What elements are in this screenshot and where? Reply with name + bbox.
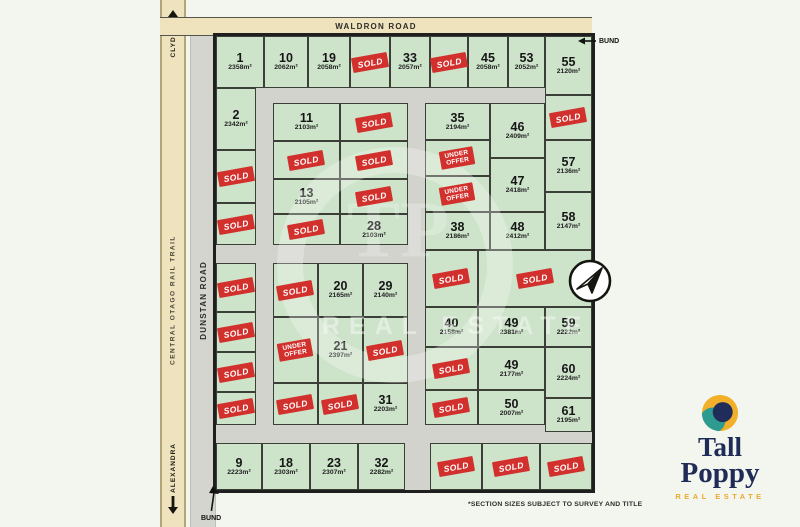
lot-18: 182303m²	[262, 443, 310, 490]
sold-badge: SOLD	[355, 111, 393, 132]
lot-size: 2358m²	[228, 64, 251, 72]
lot-2: 22342m²	[216, 88, 256, 150]
alexandra-label: ALEXANDRA	[170, 443, 177, 493]
lot-sold: SOLD	[216, 392, 256, 425]
lot-size: 2223m²	[227, 469, 250, 477]
lot-sold: SOLD	[216, 203, 256, 245]
lot-number: 58	[562, 211, 576, 223]
lot-number: 10	[279, 52, 293, 64]
bund-label-top: BUND	[578, 37, 619, 45]
lot-sold: SOLD	[430, 443, 482, 490]
sold-badge: SOLD	[366, 339, 404, 360]
lot-number: 2	[233, 109, 240, 121]
lot-40: 402158m²	[425, 307, 478, 347]
lot-sold: SOLD	[273, 263, 318, 317]
lot-number: 60	[562, 363, 576, 375]
sold-badge: SOLD	[437, 456, 475, 477]
lot-sold: SOLD	[540, 443, 592, 490]
sold-badge: SOLD	[432, 397, 470, 418]
lot-number: 19	[322, 52, 336, 64]
lot-sold: SOLD	[425, 250, 478, 307]
lot-size: 2062m²	[274, 64, 297, 72]
down-arrow-icon	[168, 496, 178, 514]
lot-sold: SOLD	[430, 36, 468, 88]
lot-under-offer: UNDEROFFER	[425, 176, 490, 212]
logo-tagline: REAL ESTATE	[655, 492, 785, 501]
lot-47: 472418m²	[490, 158, 545, 212]
lot-sold: SOLD	[216, 263, 256, 312]
lot-sold: SOLD	[273, 214, 340, 245]
lot-size: 2158m²	[440, 329, 463, 337]
lot-31: 312203m²	[363, 383, 408, 425]
lot-59: 592222m²	[545, 307, 592, 347]
lot-35: 352194m²	[425, 103, 490, 140]
lot-size: 2105m²	[295, 199, 318, 207]
lot-number: 38	[451, 221, 465, 233]
lot-number: 31	[379, 394, 393, 406]
sold-badge: SOLD	[276, 279, 314, 300]
lot-number: 46	[511, 121, 525, 133]
lot-sold: SOLD	[273, 141, 340, 179]
lot-21: 212397m²	[318, 317, 363, 383]
bund-label-bottom: BUND	[201, 486, 223, 522]
compass-icon	[567, 258, 613, 304]
lot-10: 102062m²	[264, 36, 308, 88]
sold-badge: SOLD	[351, 51, 389, 72]
lot-sold: SOLD	[216, 150, 256, 203]
lot-number: 32	[375, 457, 389, 469]
lot-sold: SOLD	[318, 383, 363, 425]
lot-size: 2418m²	[506, 187, 529, 195]
lot-size: 2222m²	[557, 329, 580, 337]
poppy-flower-icon	[700, 393, 740, 433]
lot-20: 202165m²	[318, 263, 363, 317]
lot-number: 35	[451, 112, 465, 124]
lot-29: 292140m²	[363, 263, 408, 317]
logo-line1: Tall	[655, 435, 785, 459]
lot-32: 322282m²	[358, 443, 405, 490]
sold-badge: SOLD	[321, 393, 359, 414]
sold-badge: SOLD	[516, 268, 554, 289]
subdivision-map: CLYDE CENTRAL OTAGO RAIL TRAIL ALEXANDRA…	[0, 0, 800, 527]
waldron-road-label: WALDRON ROAD	[335, 22, 417, 31]
lot-size: 2412m²	[506, 233, 529, 241]
sold-badge: SOLD	[217, 321, 255, 342]
sold-badge: SOLD	[217, 398, 255, 419]
lot-33: 332057m²	[390, 36, 430, 88]
under-offer-badge: UNDEROFFER	[439, 182, 476, 206]
lot-size: 2057m²	[398, 64, 421, 72]
sold-badge: SOLD	[355, 149, 393, 170]
lot-60: 602224m²	[545, 347, 592, 398]
lot-number: 45	[481, 52, 495, 64]
lot-number: 29	[379, 280, 393, 292]
lot-size: 2397m²	[329, 352, 352, 360]
lot-number: 28	[367, 220, 381, 232]
sold-badge: SOLD	[492, 456, 530, 477]
lot-number: 47	[511, 175, 525, 187]
waldron-road: WALDRON ROAD	[160, 17, 592, 36]
lot-number: 55	[562, 56, 576, 68]
lot-number: 49	[505, 359, 519, 371]
under-offer-badge: UNDEROFFER	[277, 338, 314, 362]
lot-size: 2194m²	[446, 124, 469, 132]
footnote: *SECTION SIZES SUBJECT TO SURVEY AND TIT…	[468, 501, 642, 508]
lot-sold: SOLD	[425, 390, 478, 425]
lot-58: 582147m²	[545, 192, 592, 250]
lot-number: 23	[327, 457, 341, 469]
sold-badge: SOLD	[217, 361, 255, 382]
sold-badge: SOLD	[287, 219, 325, 240]
lot-49: 492177m²	[478, 347, 545, 390]
sold-badge: SOLD	[217, 277, 255, 298]
lot-61: 612195m²	[545, 398, 592, 432]
lot-9: 92223m²	[216, 443, 262, 490]
lot-19: 192058m²	[308, 36, 350, 88]
lot-number: 48	[511, 221, 525, 233]
leader-arrow-icon	[578, 37, 596, 45]
lot-size: 2165m²	[329, 292, 352, 300]
lot-number: 49	[505, 317, 519, 329]
lot-size: 2120m²	[557, 68, 580, 76]
sold-badge: SOLD	[549, 107, 587, 128]
lot-sold: SOLD	[545, 95, 592, 140]
lot-size: 2058m²	[317, 64, 340, 72]
lot-28: 282103m²	[340, 214, 408, 245]
lot-11: 112103m²	[273, 103, 340, 141]
lot-sold: SOLD	[216, 312, 256, 352]
lot-sold: SOLD	[363, 317, 408, 383]
logo-line2: Poppy	[655, 459, 785, 487]
under-offer-badge: UNDEROFFER	[439, 146, 476, 170]
lot-size: 2409m²	[506, 133, 529, 141]
lot-57: 572136m²	[545, 140, 592, 192]
lot-number: 18	[279, 457, 293, 469]
lot-number: 11	[300, 112, 313, 124]
lot-size: 2203m²	[374, 406, 397, 414]
lot-size: 2058m²	[476, 64, 499, 72]
lot-size: 2307m²	[322, 469, 345, 477]
lot-number: 1	[237, 52, 244, 64]
lot-50: 502007m²	[478, 390, 545, 425]
sold-badge: SOLD	[430, 51, 468, 72]
lot-size: 2342m²	[224, 121, 247, 129]
lot-under-offer: UNDEROFFER	[425, 140, 490, 176]
lot-sold: SOLD	[340, 141, 408, 179]
lot-size: 2103m²	[295, 124, 318, 132]
lot-38: 382186m²	[425, 212, 490, 250]
lot-under-offer: UNDEROFFER	[273, 317, 318, 383]
lot-sold: SOLD	[340, 179, 408, 214]
lot-sold: SOLD	[350, 36, 390, 88]
lot-size: 2195m²	[557, 417, 580, 425]
lot-size: 2007m²	[500, 410, 523, 418]
lot-number: 9	[236, 457, 243, 469]
lot-23: 232307m²	[310, 443, 358, 490]
leader-arrow-icon	[201, 486, 223, 512]
lot-45: 452058m²	[468, 36, 508, 88]
lot-size: 2224m²	[557, 375, 580, 383]
direction-alexandra: ALEXANDRA	[160, 443, 186, 514]
lot-sold: SOLD	[273, 383, 318, 425]
lot-number: 20	[334, 280, 348, 292]
lot-number: 33	[403, 52, 417, 64]
lot-size: 2282m²	[370, 469, 393, 477]
lot-number: 50	[505, 398, 519, 410]
rail-trail-label: CENTRAL OTAGO RAIL TRAIL	[163, 180, 183, 420]
lot-1: 12358m²	[216, 36, 264, 88]
lot-number: 61	[562, 405, 576, 417]
lot-number: 40	[445, 317, 459, 329]
sold-badge: SOLD	[276, 393, 314, 414]
lot-size: 2052m²	[515, 64, 538, 72]
sold-badge: SOLD	[217, 213, 255, 234]
lot-size: 2136m²	[557, 168, 580, 176]
lot-size: 2103m²	[362, 232, 385, 240]
sold-badge: SOLD	[432, 268, 470, 289]
sold-badge: SOLD	[287, 149, 325, 170]
lot-sold: SOLD	[340, 103, 408, 141]
sold-badge: SOLD	[355, 186, 393, 207]
lot-number: 53	[520, 52, 534, 64]
tall-poppy-logo: Tall Poppy REAL ESTATE	[655, 393, 785, 501]
lot-46: 462409m²	[490, 103, 545, 158]
lot-49: 492381m²	[478, 307, 545, 347]
lot-13: 132105m²	[273, 179, 340, 214]
lot-sold: SOLD	[216, 352, 256, 392]
lot-48: 482412m²	[490, 212, 545, 250]
lot-53: 532052m²	[508, 36, 545, 88]
lot-size: 2303m²	[274, 469, 297, 477]
lot-size: 2381m²	[500, 329, 523, 337]
lot-number: 57	[562, 156, 576, 168]
sold-badge: SOLD	[547, 456, 585, 477]
lot-sold: SOLD	[425, 347, 478, 390]
lot-size: 2186m²	[446, 233, 469, 241]
lot-size: 2177m²	[500, 371, 523, 379]
lot-size: 2140m²	[374, 292, 397, 300]
dunstan-road-label: DUNSTAN ROAD	[199, 261, 208, 340]
lot-number: 21	[334, 340, 348, 352]
lot-number: 59	[562, 317, 576, 329]
lot-number: 13	[300, 187, 314, 199]
dunstan-road-label-wrap: DUNSTAN ROAD	[193, 215, 213, 385]
sold-badge: SOLD	[432, 358, 470, 379]
lot-sold: SOLD	[482, 443, 540, 490]
sold-badge: SOLD	[217, 166, 255, 187]
lot-size: 2147m²	[557, 223, 580, 231]
